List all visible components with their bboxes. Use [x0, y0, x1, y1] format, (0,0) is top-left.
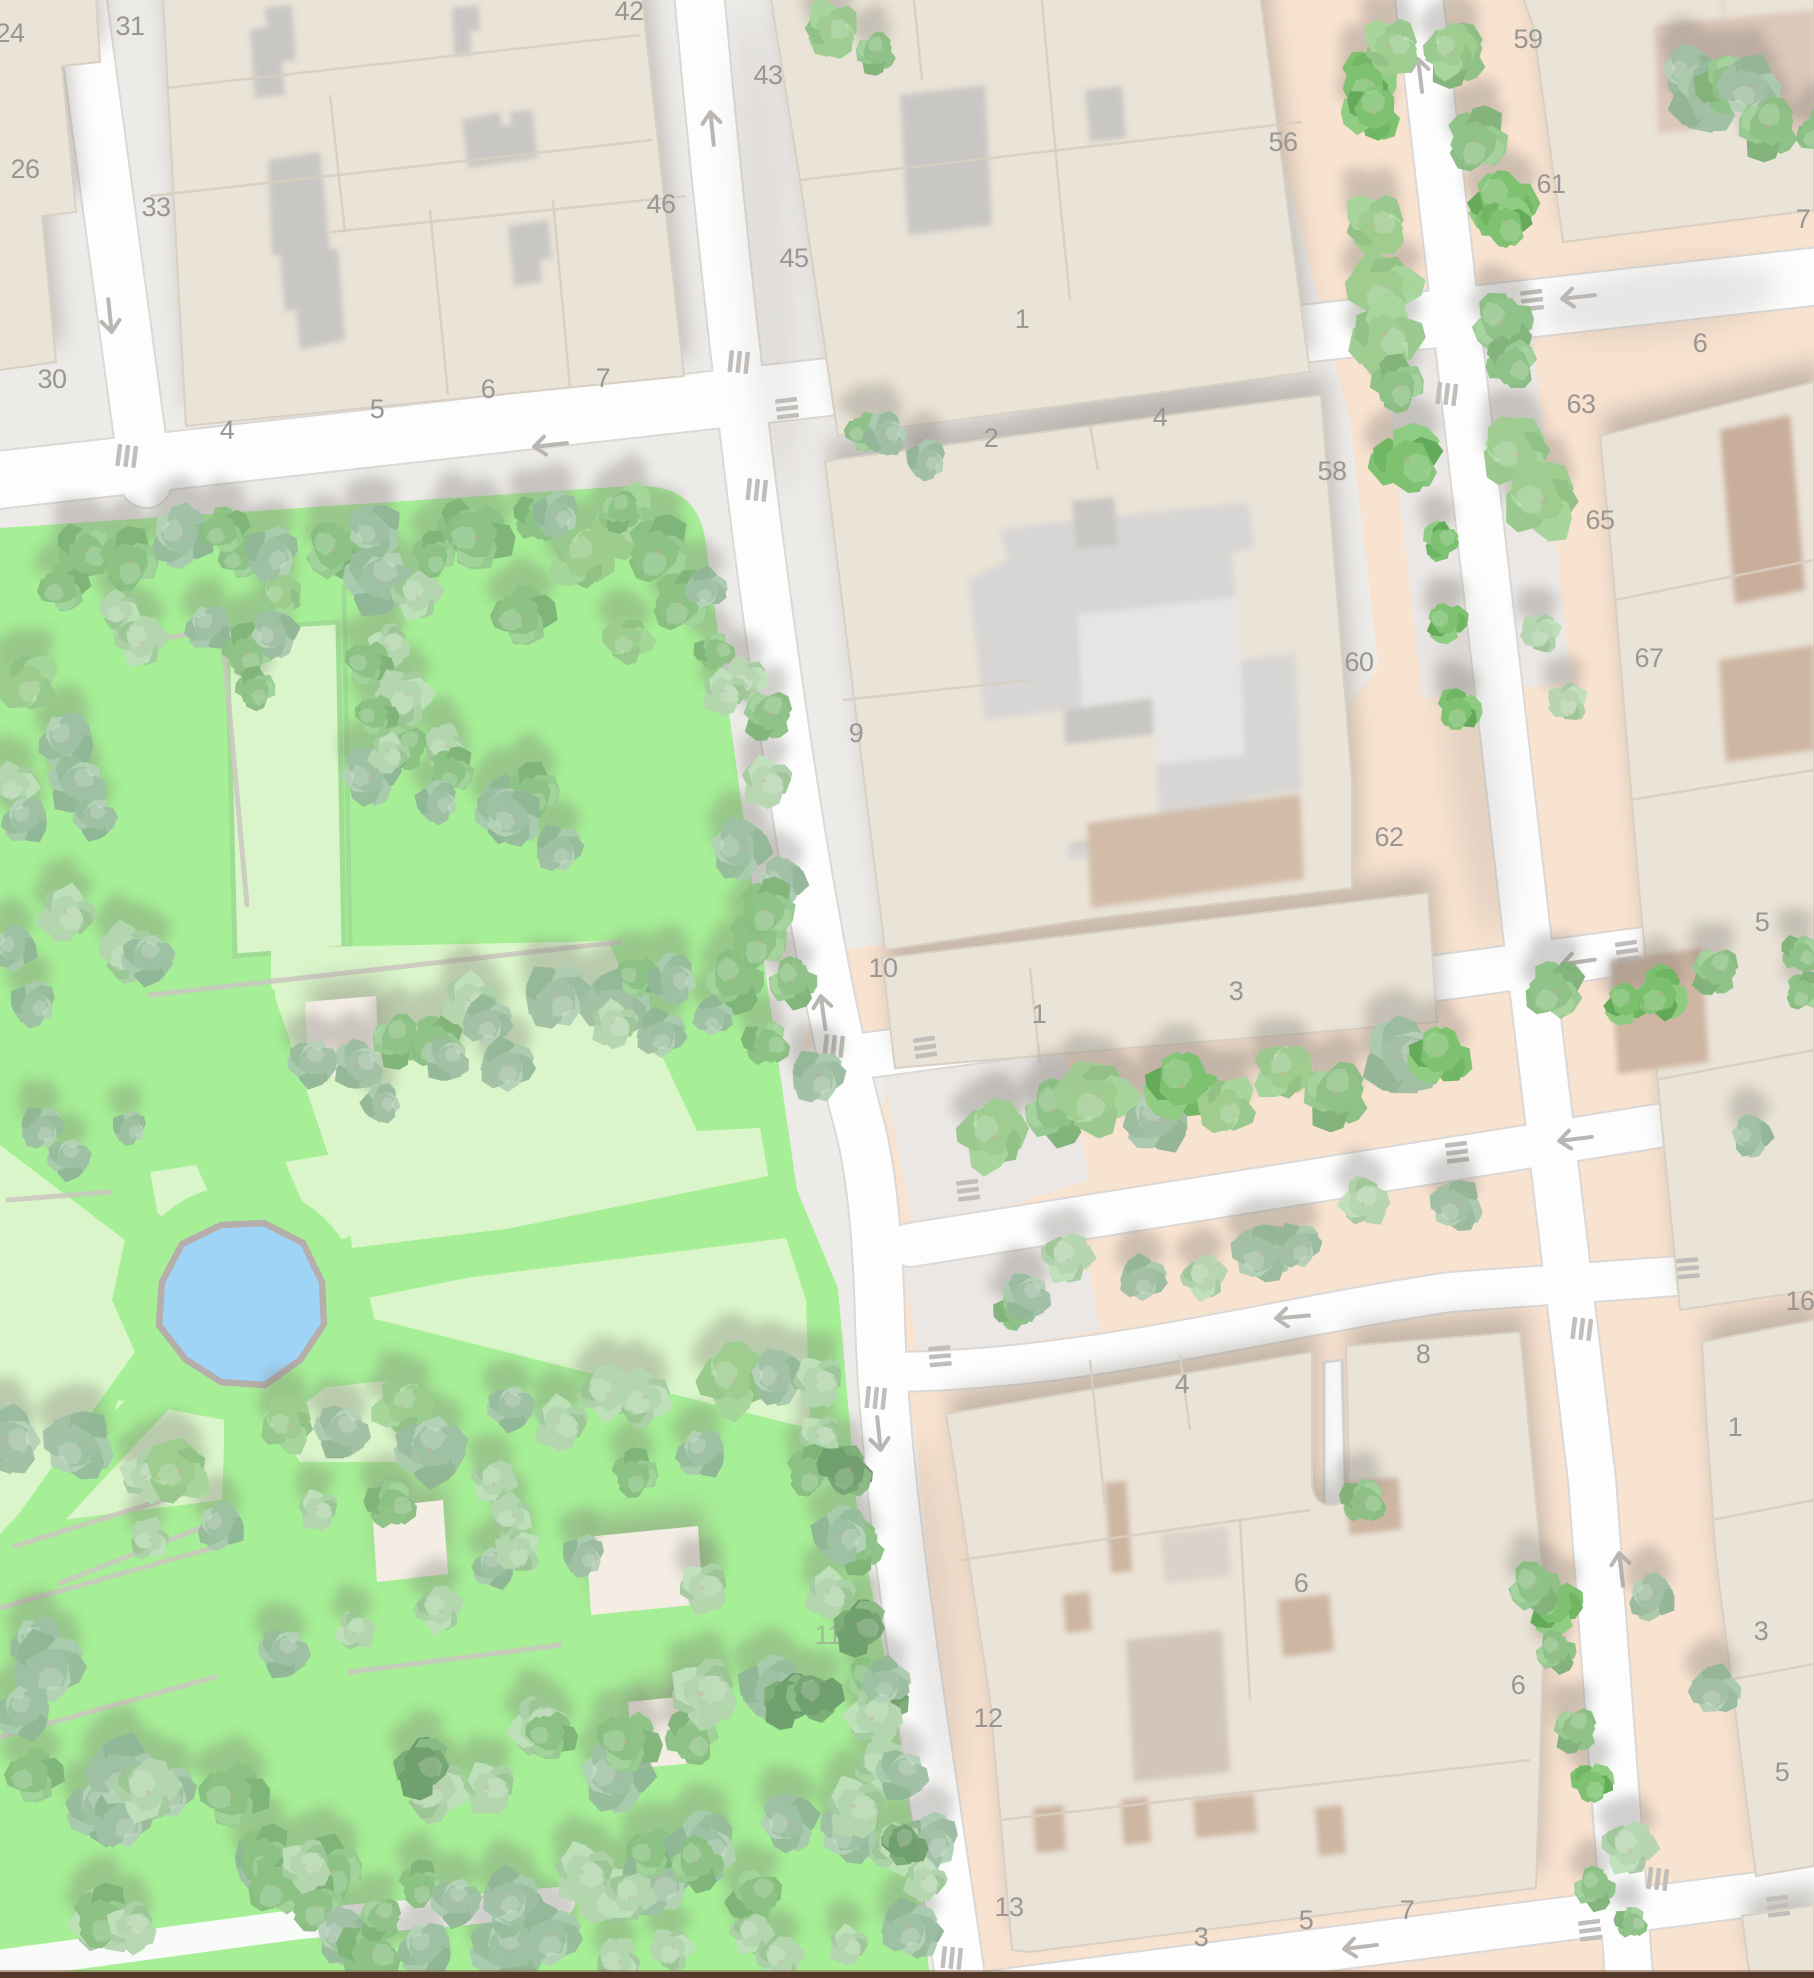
svg-text:5: 5: [1299, 1905, 1314, 1935]
svg-text:5: 5: [1755, 907, 1770, 937]
svg-text:61: 61: [1536, 169, 1565, 199]
svg-text:10: 10: [868, 953, 897, 983]
svg-text:65: 65: [1585, 505, 1614, 535]
svg-text:9: 9: [849, 718, 864, 748]
svg-text:1: 1: [1032, 999, 1047, 1029]
svg-text:6: 6: [1511, 1670, 1526, 1700]
svg-text:6: 6: [1693, 328, 1708, 358]
svg-text:4: 4: [1153, 402, 1168, 432]
svg-text:4: 4: [1175, 1369, 1190, 1399]
svg-text:33: 33: [141, 192, 170, 222]
svg-text:46: 46: [646, 189, 675, 219]
svg-text:62: 62: [1374, 822, 1403, 852]
svg-text:3: 3: [1229, 976, 1244, 1006]
svg-text:56: 56: [1268, 127, 1297, 157]
svg-text:8: 8: [1416, 1339, 1431, 1369]
svg-text:7: 7: [1796, 204, 1811, 234]
svg-text:2: 2: [984, 423, 999, 453]
svg-text:26: 26: [10, 154, 39, 184]
svg-text:59: 59: [1513, 24, 1542, 54]
svg-text:63: 63: [1566, 389, 1595, 419]
svg-text:4: 4: [220, 415, 235, 445]
svg-text:60: 60: [1344, 647, 1373, 677]
svg-text:1: 1: [1728, 1412, 1743, 1442]
svg-text:5: 5: [1775, 1757, 1790, 1787]
svg-text:45: 45: [779, 243, 808, 273]
svg-text:6: 6: [1294, 1568, 1309, 1598]
svg-text:12: 12: [973, 1703, 1002, 1733]
svg-text:7: 7: [1400, 1895, 1415, 1925]
svg-text:13: 13: [994, 1892, 1023, 1922]
svg-text:31: 31: [115, 11, 144, 41]
svg-text:11: 11: [814, 1620, 841, 1650]
svg-text:3: 3: [1754, 1616, 1769, 1646]
svg-text:43: 43: [753, 60, 782, 90]
svg-text:30: 30: [37, 364, 66, 394]
svg-text:3: 3: [1194, 1922, 1209, 1952]
svg-text:67: 67: [1634, 643, 1663, 673]
svg-text:1: 1: [1015, 304, 1030, 334]
svg-text:24: 24: [0, 18, 25, 48]
svg-text:58: 58: [1317, 456, 1346, 486]
svg-text:16: 16: [1785, 1286, 1814, 1316]
svg-text:6: 6: [481, 374, 496, 404]
svg-text:7: 7: [596, 363, 611, 393]
svg-text:5: 5: [370, 394, 385, 424]
svg-text:42: 42: [614, 0, 643, 26]
